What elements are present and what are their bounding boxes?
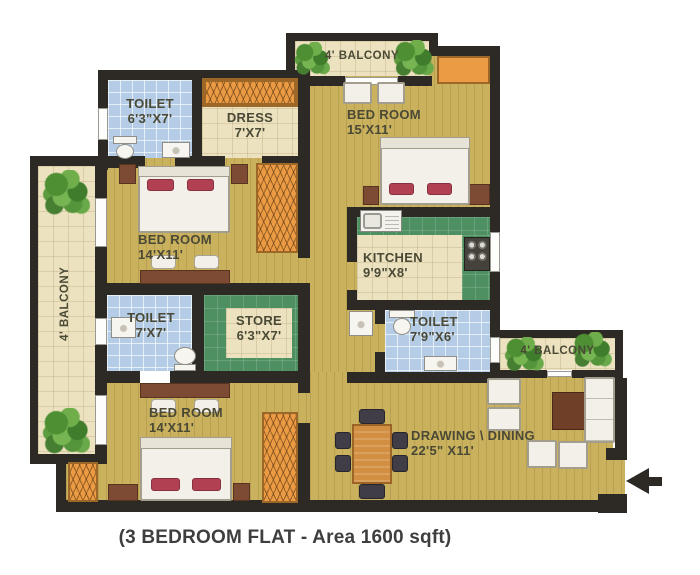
wall [375,310,385,324]
room-label-bedroom-bottom: BED ROOM14'X11' [149,405,223,436]
wc-icon [116,144,134,159]
nightstand [119,164,136,184]
room-label-bedroom-middle: BED ROOM14'X11' [138,232,212,263]
room-label-store: STORE6'3"X7' [226,313,292,344]
dressing-table [140,383,230,398]
toilet-top-door [98,108,108,140]
room-label-toilet-middle: TOILET7'X7' [112,310,190,341]
wall [98,371,140,383]
dining-chair [359,409,385,424]
wall [347,372,500,383]
sofa [584,377,615,443]
plan-caption: (3 BEDROOM FLAT - Area 1600 sqft) [90,527,480,549]
floor-entrance [613,460,625,497]
wall [95,247,107,283]
washbasin [424,356,457,371]
wall [298,288,310,383]
bed-pillow [151,478,180,491]
room-label-toilet-top: TOILET6'3"X7' [108,96,192,127]
wall [30,156,38,464]
bed-headboard [140,437,232,449]
nightstand [108,484,138,501]
dining-table [352,424,392,484]
stove [464,237,490,271]
bed-pillow [389,183,414,195]
wc-icon [393,318,411,335]
floor-plan: TOILET6'3"X7' DRESS7'X7' BED ROOM15'X11'… [0,0,700,575]
bed-pillow [187,179,214,191]
wall [56,460,66,512]
wall [490,46,500,217]
armchair [558,441,588,469]
wall [98,70,108,108]
room-label-toilet-right: TOILET7'9"X6' [410,314,458,345]
wall [298,70,310,258]
room-label-dress: DRESS7'X7' [202,110,298,141]
wall [347,300,500,310]
kitchen-window [490,232,500,272]
wardrobe [262,412,298,503]
balcony-door-right [547,371,572,377]
bed-pillow [147,179,174,191]
entrance-arrow-shaft [648,477,662,486]
nightstand [231,164,248,184]
nightstand [468,184,490,205]
entrance-arrow-icon [626,468,649,494]
dining-chair [359,484,385,499]
wall [170,371,310,383]
armchair [487,378,521,405]
wall [298,383,310,393]
dining-chair [392,432,408,449]
wc-tank [174,364,196,371]
dressing-table [140,270,230,284]
balcony-door-bedroom-middle [95,198,107,247]
balcony-label-top: 4' BALCONY [295,50,429,64]
room-label-drawing-dining: DRAWING \ DINING22'5" X11' [411,428,535,459]
wall [606,448,627,460]
side-table [377,82,405,104]
wardrobe [256,163,298,253]
coffee-table [552,392,586,430]
wall [490,272,500,337]
side-table [343,82,372,104]
wall [298,423,310,512]
bed-pillow [192,478,221,491]
toilet-middle-window [95,318,107,345]
wall [375,352,385,372]
wall [615,330,623,378]
room-label-bedroom-top-right: BED ROOM15'X11' [347,107,421,138]
wall [615,378,627,448]
dining-chair [392,455,408,472]
washbasin [162,142,190,158]
bed-headboard [380,137,470,149]
toilet-right-window [490,337,500,363]
wall [500,370,547,378]
washbasin [349,311,373,336]
wall [490,217,500,232]
kitchen-sink-basin [363,213,382,229]
plant [42,408,90,454]
wall [192,80,202,160]
corner-wardrobe [437,56,490,84]
wall [95,383,107,395]
wc-icon [174,347,196,365]
wall [56,500,627,512]
plant [42,170,90,215]
wc-tank [113,136,137,144]
kitchen-sink-drainboard [385,213,399,229]
room-label-kitchen: KITCHEN9'9"X8' [363,250,423,281]
wall [95,158,107,198]
wall [98,283,310,295]
wall [347,207,357,262]
nightstand [233,483,250,501]
balcony-door-bedroom-bottom [95,395,107,445]
nightstand [363,186,379,205]
balcony-label-left: 4' BALCONY [59,244,73,364]
dress-wardrobe-hangers [204,80,296,105]
wardrobe [68,462,98,502]
balcony-label-right: 4' BALCONY [500,345,615,359]
dining-chair [335,432,351,449]
dining-chair [335,455,351,472]
bed-headboard [138,166,230,177]
bed-pillow [427,183,452,195]
